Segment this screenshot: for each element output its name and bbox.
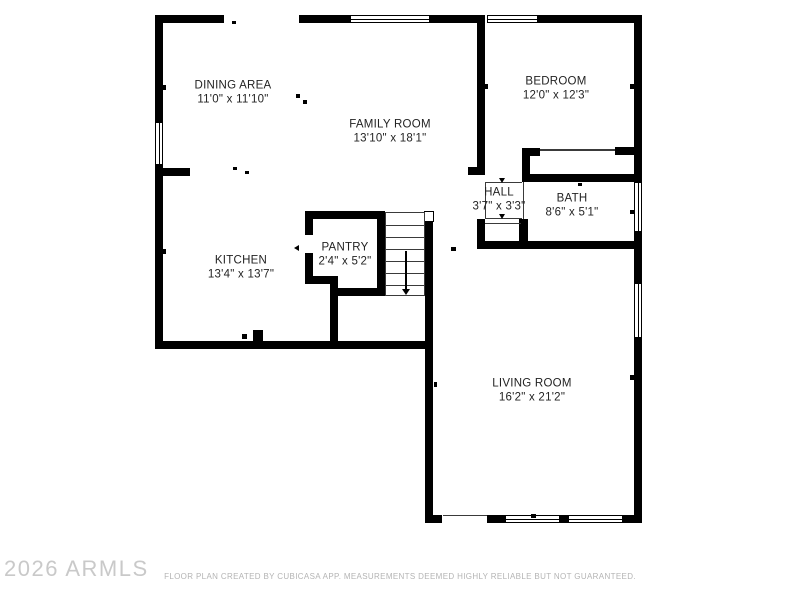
room-name: LIVING ROOM [492, 378, 571, 392]
room-label-bath: BATH8'6" x 5'1" [545, 193, 598, 220]
room-dimensions: 3'7" x 3'3" [472, 200, 525, 214]
wall-tick-mark [451, 247, 456, 251]
wall-tick-mark [630, 84, 634, 89]
wall [155, 341, 433, 349]
wall-tick-mark [578, 183, 582, 186]
room-name: HALL [472, 187, 525, 201]
opening-indicator-triangle [499, 178, 505, 183]
room-dimensions: 8'6" x 5'1" [545, 206, 598, 220]
wall [425, 222, 433, 515]
wall [155, 15, 163, 122]
room-label-pantry: PANTRY2'4" x 5'2" [318, 242, 371, 269]
room-dimensions: 12'0" x 12'3" [523, 89, 589, 103]
window-pane-line [638, 183, 639, 231]
window-pane-line [506, 519, 559, 520]
wall [155, 165, 163, 349]
door-opening-line [485, 223, 521, 224]
wall-tick-mark [232, 21, 236, 24]
room-label-dining: DINING AREA11'0" x 11'10" [195, 80, 272, 107]
window-pane-line [351, 19, 429, 20]
wall [487, 515, 505, 523]
room-dimensions: 11'0" x 11'10" [195, 93, 272, 107]
wall [634, 338, 642, 523]
wall-tick-mark [233, 167, 237, 170]
room-label-living: LIVING ROOM16'2" x 21'2" [492, 378, 571, 405]
window-pane-line [488, 19, 537, 20]
room-name: DINING AREA [195, 80, 272, 94]
opening-indicator-triangle [499, 214, 505, 219]
room-dimensions: 13'10" x 18'1" [349, 132, 431, 146]
stair-tread [386, 237, 424, 238]
wall [477, 241, 642, 249]
room-dimensions: 16'2" x 21'2" [492, 391, 571, 405]
wall-tick-mark [630, 375, 634, 380]
window [634, 283, 642, 338]
floor-plan: DINING AREA11'0" x 11'10"FAMILY ROOM13'1… [0, 0, 800, 600]
room-name: FAMILY ROOM [349, 119, 431, 133]
window-pane-line [569, 519, 622, 520]
wall-tick-mark [245, 171, 249, 174]
window [424, 211, 434, 222]
wall [634, 15, 642, 182]
stair-tread [386, 225, 424, 226]
wall [155, 15, 224, 23]
window [634, 182, 642, 232]
wall-tick-mark [531, 514, 536, 518]
wall-tick-mark [630, 210, 634, 214]
room-name: BATH [545, 193, 598, 207]
window [155, 122, 163, 165]
window [568, 515, 623, 523]
wall [468, 167, 485, 175]
stair-direction-arrow [405, 251, 407, 289]
window [487, 15, 538, 23]
wall [377, 211, 385, 296]
wall-tick-mark [242, 334, 247, 339]
window-pane-line [159, 123, 160, 164]
wall [634, 232, 642, 283]
wall [253, 330, 263, 341]
wall [305, 211, 385, 219]
room-label-bedroom: BEDROOM12'0" x 12'3" [523, 76, 589, 103]
wall [477, 15, 485, 175]
wall-tick-mark [434, 382, 437, 387]
stairs [385, 212, 425, 296]
opening-indicator-triangle [294, 245, 299, 251]
door-opening-line [443, 515, 487, 516]
window-pane-line [638, 284, 639, 337]
room-label-hall: HALL3'7" x 3'3" [472, 187, 525, 214]
disclaimer-text: FLOOR PLAN CREATED BY CUBICASA APP. MEAS… [0, 572, 800, 581]
wall [163, 168, 190, 176]
room-name: PANTRY [318, 242, 371, 256]
wall [425, 515, 442, 523]
wall [560, 515, 568, 523]
wall [305, 211, 313, 235]
room-name: KITCHEN [208, 255, 274, 269]
wall-tick-mark [303, 100, 307, 104]
door-opening-line [540, 149, 615, 151]
window [350, 15, 430, 23]
room-name: BEDROOM [523, 76, 589, 90]
wall-tick-mark [163, 249, 166, 254]
stair-arrow-head [402, 289, 410, 295]
wall-tick-mark [296, 94, 300, 98]
stair-tread [386, 249, 424, 250]
wall [522, 174, 634, 182]
wall [330, 276, 338, 349]
wall [615, 147, 634, 155]
room-label-family: FAMILY ROOM13'10" x 18'1" [349, 119, 431, 146]
wall [623, 515, 642, 523]
room-label-kitchen: KITCHEN13'4" x 13'7" [208, 255, 274, 282]
wall-tick-mark [163, 85, 166, 90]
room-dimensions: 13'4" x 13'7" [208, 268, 274, 282]
wall [299, 15, 350, 23]
wall-tick-mark [485, 84, 488, 89]
wall [538, 15, 642, 23]
room-dimensions: 2'4" x 5'2" [318, 255, 371, 269]
